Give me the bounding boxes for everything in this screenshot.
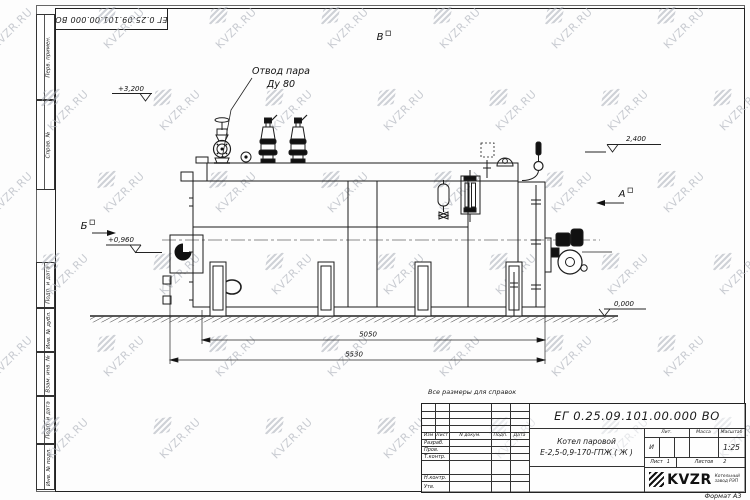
lifting-lug-front (241, 152, 251, 163)
pressure-gauge-cylinder (438, 180, 449, 219)
format-label: Формат А3 (688, 492, 750, 500)
logo-caption: Котельный завод РЭП (715, 475, 740, 485)
ground-line (90, 316, 618, 322)
view-b-sheet-ref-mark (90, 220, 95, 225)
scale-header: Масштаб (718, 428, 745, 437)
callout-leader-end (221, 156, 223, 158)
row-nkontr: Н.контр. (422, 474, 449, 481)
view-a-arrow (596, 200, 605, 206)
col-header-podp: Подп. (491, 432, 510, 439)
sheet-label: Лист (650, 459, 663, 465)
row-utv: Утв. (422, 481, 449, 492)
dimension-5050: 5050 (359, 331, 377, 339)
burner-opening (175, 244, 192, 261)
scale-value: 1:25 (718, 437, 745, 457)
callout-text-line2: Ду 80 (266, 79, 295, 90)
mass-header: Масса (689, 428, 718, 437)
title-doc-number: ЕГ 0.25.09.101.00.000 ВО (529, 404, 745, 428)
sheets-label: Листов (695, 459, 714, 465)
sheets-value: 2 (723, 459, 726, 465)
elevation-3200-label: +3,200 (118, 85, 144, 93)
col-header-ndoc: N докум. (449, 432, 491, 439)
safety-valve-2 (289, 115, 307, 163)
water-level-gauge (461, 170, 480, 222)
elevation-marks: +3,200 2,400 +0,960 0,000 (106, 85, 661, 316)
col-header-data: Дата (510, 432, 529, 439)
dimension-5530: 5530 (345, 351, 363, 359)
sheets-cell: Листов 2 (676, 457, 745, 467)
sheet-value: 1 (667, 459, 670, 465)
view-a-sheet-ref-mark (628, 188, 633, 193)
col-header-list: Лист (435, 432, 449, 439)
row-prov: Пров. (422, 446, 449, 453)
kvzr-logo-icon (649, 472, 664, 487)
drawing-sheet: KVZR.RUKVZR.RUKVZR.RUKVZR.RUKVZR.RUKVZR.… (0, 0, 750, 500)
view-labels: Б В А (81, 31, 633, 236)
safety-valve-1 (259, 115, 277, 163)
view-label-b: Б (81, 221, 88, 232)
kvzr-logo-text: KVZR (667, 472, 712, 488)
elevation-0000-label: 0,000 (614, 300, 635, 308)
reference-note: Все размеры для справок (428, 388, 516, 396)
view-label-a: А (618, 189, 626, 200)
support-legs (210, 262, 522, 316)
lit-header: Лит. (644, 428, 689, 437)
view-label-v: В (377, 32, 384, 43)
rear-top-details (481, 142, 543, 181)
view-v-sheet-ref-mark (386, 31, 391, 36)
callout-text-line1: Отвод пара (252, 66, 310, 77)
elevation-2400-label: 2,400 (626, 135, 647, 143)
elevation-0960-label: +0,960 (108, 236, 134, 244)
title-block: Изм Лист N докум. Подп. Дата Разраб. Про… (421, 403, 746, 493)
burner-box (163, 235, 203, 304)
product-name-line1: Котел паровой (557, 436, 616, 447)
feed-pump (545, 229, 612, 274)
lit-value: И (644, 437, 659, 457)
product-name: Котел паровой Е-2,5-0,9-170-ГПЖ ( Ж ) (529, 428, 644, 466)
company-logo-cell: KVZR Котельный завод РЭП (644, 467, 745, 492)
row-tkontr: Т.контр. (422, 453, 449, 460)
row-razrab: Разраб. (422, 439, 449, 446)
product-name-line2: Е-2,5-0,9-170-ГПЖ ( Ж ) (540, 447, 633, 458)
logo-caption-line2: завод РЭП (715, 480, 740, 485)
sheet-cell: Лист 1 (644, 457, 676, 467)
col-header-izm: Изм (422, 432, 435, 439)
